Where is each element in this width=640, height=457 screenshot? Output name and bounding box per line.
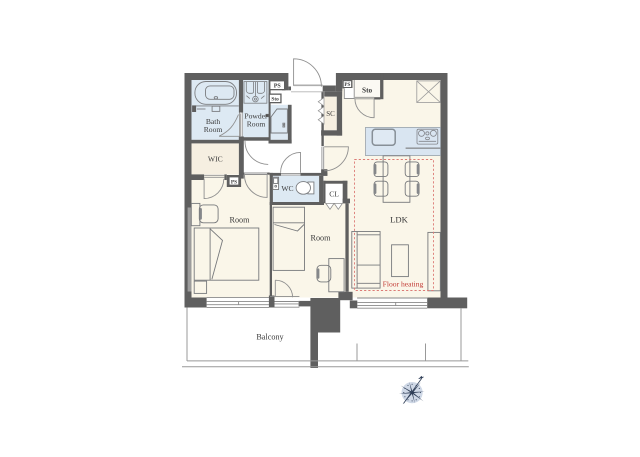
svg-text:SC: SC bbox=[326, 110, 335, 118]
svg-text:Floor heating: Floor heating bbox=[383, 279, 424, 288]
svg-text:Sto: Sto bbox=[362, 85, 372, 94]
svg-text:PS: PS bbox=[344, 82, 350, 88]
svg-text:Room: Room bbox=[204, 125, 223, 134]
svg-text:Balcony: Balcony bbox=[256, 332, 284, 341]
svg-text:WIC: WIC bbox=[208, 154, 223, 163]
svg-text:PS: PS bbox=[231, 180, 237, 186]
svg-text:Room: Room bbox=[310, 233, 331, 242]
svg-text:Room: Room bbox=[247, 119, 266, 128]
svg-text:LDK: LDK bbox=[390, 214, 408, 224]
svg-text:CL: CL bbox=[329, 190, 339, 199]
svg-text:Sto: Sto bbox=[271, 97, 279, 103]
svg-text:PS: PS bbox=[274, 84, 282, 90]
svg-text:WC: WC bbox=[281, 184, 293, 193]
svg-text:Room: Room bbox=[229, 215, 250, 224]
